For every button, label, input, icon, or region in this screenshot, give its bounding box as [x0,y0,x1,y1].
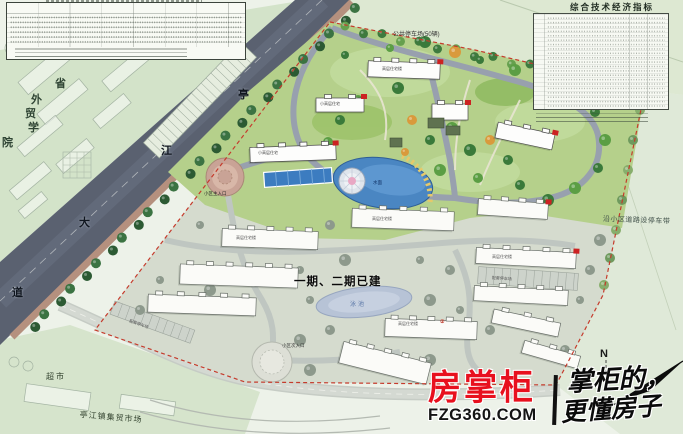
college-char: 学 [28,123,39,134]
building-label: 高层住宅楼 [382,67,402,71]
public-parking-label: 公共停车场(50辆) [393,32,440,38]
indicators-table-notes [536,112,648,122]
college-char: 院 [2,138,13,149]
building-label: 高层住宅楼 [398,322,418,326]
phase-built-label: 一期、二期已建 [294,277,382,289]
fountain-plaza [339,168,365,194]
building-number-badge [465,100,471,105]
avenue-char: 道 [12,288,23,299]
building-label: 小高层住宅 [258,151,278,155]
supermarket-label: 超市 [46,373,66,381]
watermark-slogan-line1: 掌柜的， [566,365,671,396]
college-char: 省 [55,79,66,90]
building-number-badge [545,199,551,204]
building-number-badge [361,94,367,99]
college-char: 贸 [25,109,36,120]
indicators-table-title: 综合技术经济指标 [570,3,654,12]
building-label: 小高层住宅 [320,102,340,106]
site-plan-screenshot: 综合技术经济指标 公共停车场(50辆) 沿小区道路设停车带 一期、二期已建 泳池… [0,0,683,434]
building-number-badge [437,59,443,64]
north-label: N [600,348,608,360]
building-number-badge: ② [440,320,444,325]
main-entrance-label: 小区主入口 [204,192,227,197]
college-char: 外 [31,95,42,106]
area-statistics-table [6,2,246,60]
avenue-char: 江 [161,146,172,157]
indicators-table [533,13,669,110]
watermark-domain: FZG360.COM [428,407,537,424]
avenue-char: 亭 [238,90,249,101]
building-label: 高层住宅楼 [236,236,256,240]
lake-label: 水面 [373,181,382,186]
avenue-char: 大 [79,218,90,229]
swim-pool-label: 泳池 [350,302,366,308]
secondary-entrance-label: 小区次入口 [282,344,305,349]
building-label: 高层住宅楼 [492,255,512,259]
watermark-brand: 房掌柜 [428,370,536,405]
building-label: 高层住宅楼 [372,217,392,221]
building-number-badge [333,140,339,145]
building-number-badge [573,248,579,253]
